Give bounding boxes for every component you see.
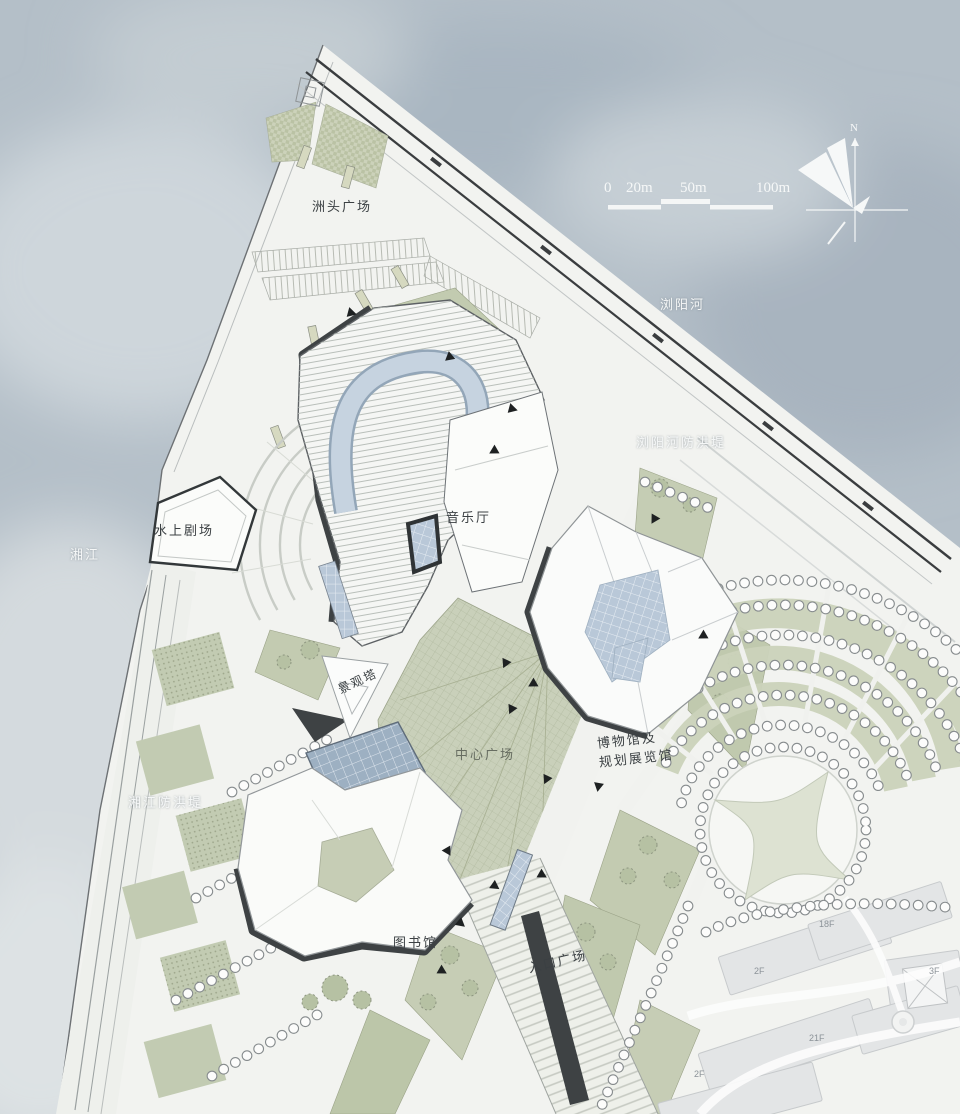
north-label: N: [850, 122, 858, 134]
label-museum: 博物馆及 规划展览馆: [596, 726, 675, 772]
context-floor-3f: 3F: [929, 966, 940, 976]
scale-tick-0: 0: [604, 180, 612, 197]
scale-tick-100m: 100m: [756, 180, 790, 197]
label-xiang-river: 湘江: [70, 544, 100, 563]
context-floor-18f: 18F: [819, 919, 835, 929]
label-library: 图书馆: [393, 932, 438, 951]
label-liuyang-river: 浏阳河: [660, 294, 705, 313]
context-floor-21f: 21F: [809, 1033, 825, 1043]
label-xiangjiang-embankment: 湘江防洪堤: [128, 792, 203, 811]
scale-tick-20m: 20m: [626, 180, 653, 197]
label-liuyang-embankment: 浏阳河防洪堤: [636, 432, 726, 451]
site-plan: 洲头广场 浏阳河 浏阳河防洪堤 音乐厅 水上剧场 湘江 景观塔 中心广场 博物馆…: [0, 0, 960, 1114]
label-water-theater: 水上剧场: [154, 520, 214, 539]
context-floor-2f-a: 2F: [754, 966, 765, 976]
scale-tick-50m: 50m: [680, 180, 707, 197]
label-concert-hall: 音乐厅: [446, 507, 491, 526]
label-zhoutou-square: 洲头广场: [312, 196, 372, 215]
context-floor-2f-b: 2F: [694, 1069, 705, 1079]
label-central-plaza: 中心广场: [455, 744, 515, 763]
site-plan-drawing: [0, 0, 960, 1114]
